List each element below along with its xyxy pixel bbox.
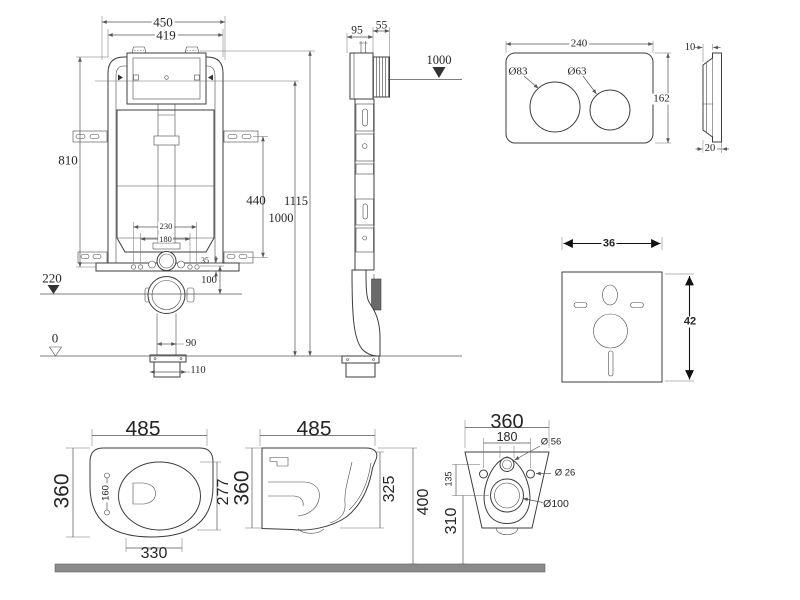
dim-small-button-diameter: Ø63: [568, 66, 587, 77]
water-inlet: [500, 458, 514, 472]
dim-bolt-spacing-outer: 230: [158, 222, 174, 231]
dim-tbv-outlet-diameter: Ø100: [543, 498, 569, 509]
large-flush-button: [530, 82, 580, 132]
dim-mat-height: 42: [682, 317, 697, 328]
flush-plate-front-view: [506, 41, 671, 143]
dim-tbv-fixing-diameter: Ø 26: [555, 468, 576, 478]
wall-bracket: [78, 252, 107, 263]
insulation-hatch: [373, 57, 390, 97]
dim-frame-height: 810: [58, 154, 78, 167]
dim-plate-width: 240: [569, 39, 589, 50]
dim-tsv-rear-height: 360: [232, 470, 253, 505]
dim-bolt-spacing-inner: 180: [158, 234, 174, 243]
small-flush-button: [590, 90, 630, 130]
dim-reference-level: 1000: [427, 54, 452, 67]
dim-ttv-depth: 485: [125, 419, 160, 440]
level-marker-filled: [48, 285, 60, 294]
waste-outlet: [491, 479, 524, 512]
dim-large-button-diameter: Ø83: [509, 66, 528, 77]
dim-tbv-inlet-diameter: Ø 56: [541, 437, 562, 447]
dim-plate-height: 162: [652, 94, 672, 105]
cistern-frame-side-view: [342, 27, 462, 377]
bowl-profile: [262, 448, 377, 530]
tank-profile: [350, 53, 373, 99]
dim-outlet-pipe-width: 90: [186, 339, 197, 350]
level-marker-open: [50, 347, 62, 356]
inspection-window: [127, 53, 206, 104]
dim-tsv-depth: 485: [296, 419, 331, 440]
dim-tank-depth: 55: [376, 20, 388, 32]
dim-base-flange-width: 110: [190, 366, 205, 377]
dim-tsv-front-height: 325: [382, 476, 398, 503]
blueprint-canvas: 450 419 810 440 1115 1000 220 0 230 180 …: [0, 0, 800, 600]
wall-bracket: [224, 131, 258, 142]
sound-insulation-mat: [562, 237, 694, 382]
outlet-connector: [148, 277, 185, 314]
flush-plate-side-view: [695, 44, 729, 153]
mat-body: [562, 272, 662, 382]
dim-mat-width: 36: [601, 238, 616, 249]
dim-plate-thickness-top: 10: [685, 42, 696, 53]
fixing-hole: [480, 470, 488, 478]
toilet-top-view: [66, 429, 221, 552]
dim-ttv-seat-depth: 330: [141, 546, 168, 562]
level-marker-filled: [433, 67, 446, 78]
dim-plate-thickness: 35: [201, 257, 209, 265]
dim-window-height: 1000: [269, 212, 294, 225]
dim-bracket-spacing: 440: [246, 194, 266, 207]
dim-ttv-width: 360: [52, 473, 73, 508]
dim-tbv-fixing-spacing: 180: [497, 431, 518, 444]
floor-bar: [55, 564, 545, 572]
dim-total-height: 1115: [284, 195, 308, 208]
dim-frame-depth: 95: [351, 25, 363, 37]
dim-tank-width: 419: [155, 28, 178, 41]
dim-tbv-inlet-to-outlet: 135: [445, 471, 454, 486]
technical-drawing: [0, 0, 800, 600]
dim-tsv-mount-height: 400: [416, 488, 432, 515]
mount-block: [372, 279, 382, 310]
dim-outlet-level: 220: [42, 272, 62, 285]
dim-floor-level: 0: [52, 332, 59, 345]
dim-tbv-outlet-height: 310: [444, 508, 460, 535]
dim-outlet-drop: 100: [201, 276, 217, 287]
dim-ttv-hinge-spacing: 160: [101, 484, 111, 503]
dim-plate-thickness-bottom: 20: [703, 144, 717, 155]
fixing-hole: [527, 470, 535, 478]
